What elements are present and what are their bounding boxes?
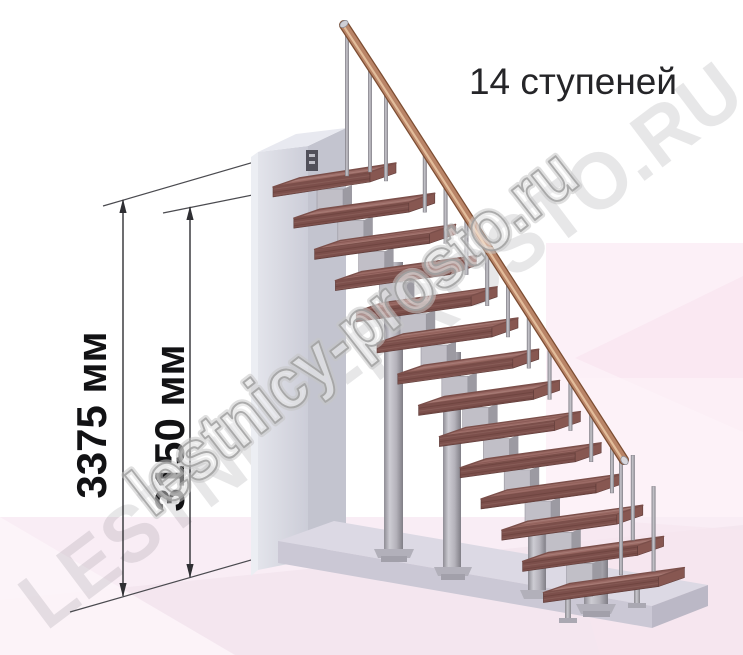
baluster [384, 90, 388, 181]
baluster [619, 460, 623, 575]
leg-foot [628, 603, 646, 608]
dimension-label-total-height: 3375 мм [68, 331, 115, 498]
bottom-step-leg [565, 597, 571, 620]
column-foot-base [381, 556, 407, 562]
baluster [652, 486, 656, 571]
baluster [631, 455, 635, 540]
staircase-diagram-page: LESTNICY-PROSTO.RU [0, 0, 743, 655]
wall-bracket [306, 150, 318, 171]
staircase-diagram: LESTNICY-PROSTO.RU [0, 0, 743, 655]
leg-foot [559, 618, 577, 623]
wall-bracket-slot [309, 161, 315, 164]
column-foot-base [441, 574, 465, 580]
column-foot-base [583, 611, 610, 617]
baluster [345, 30, 349, 176]
baluster [368, 65, 372, 172]
page-title: 14 ступеней [469, 61, 677, 102]
wall-bracket-slot [309, 154, 315, 157]
